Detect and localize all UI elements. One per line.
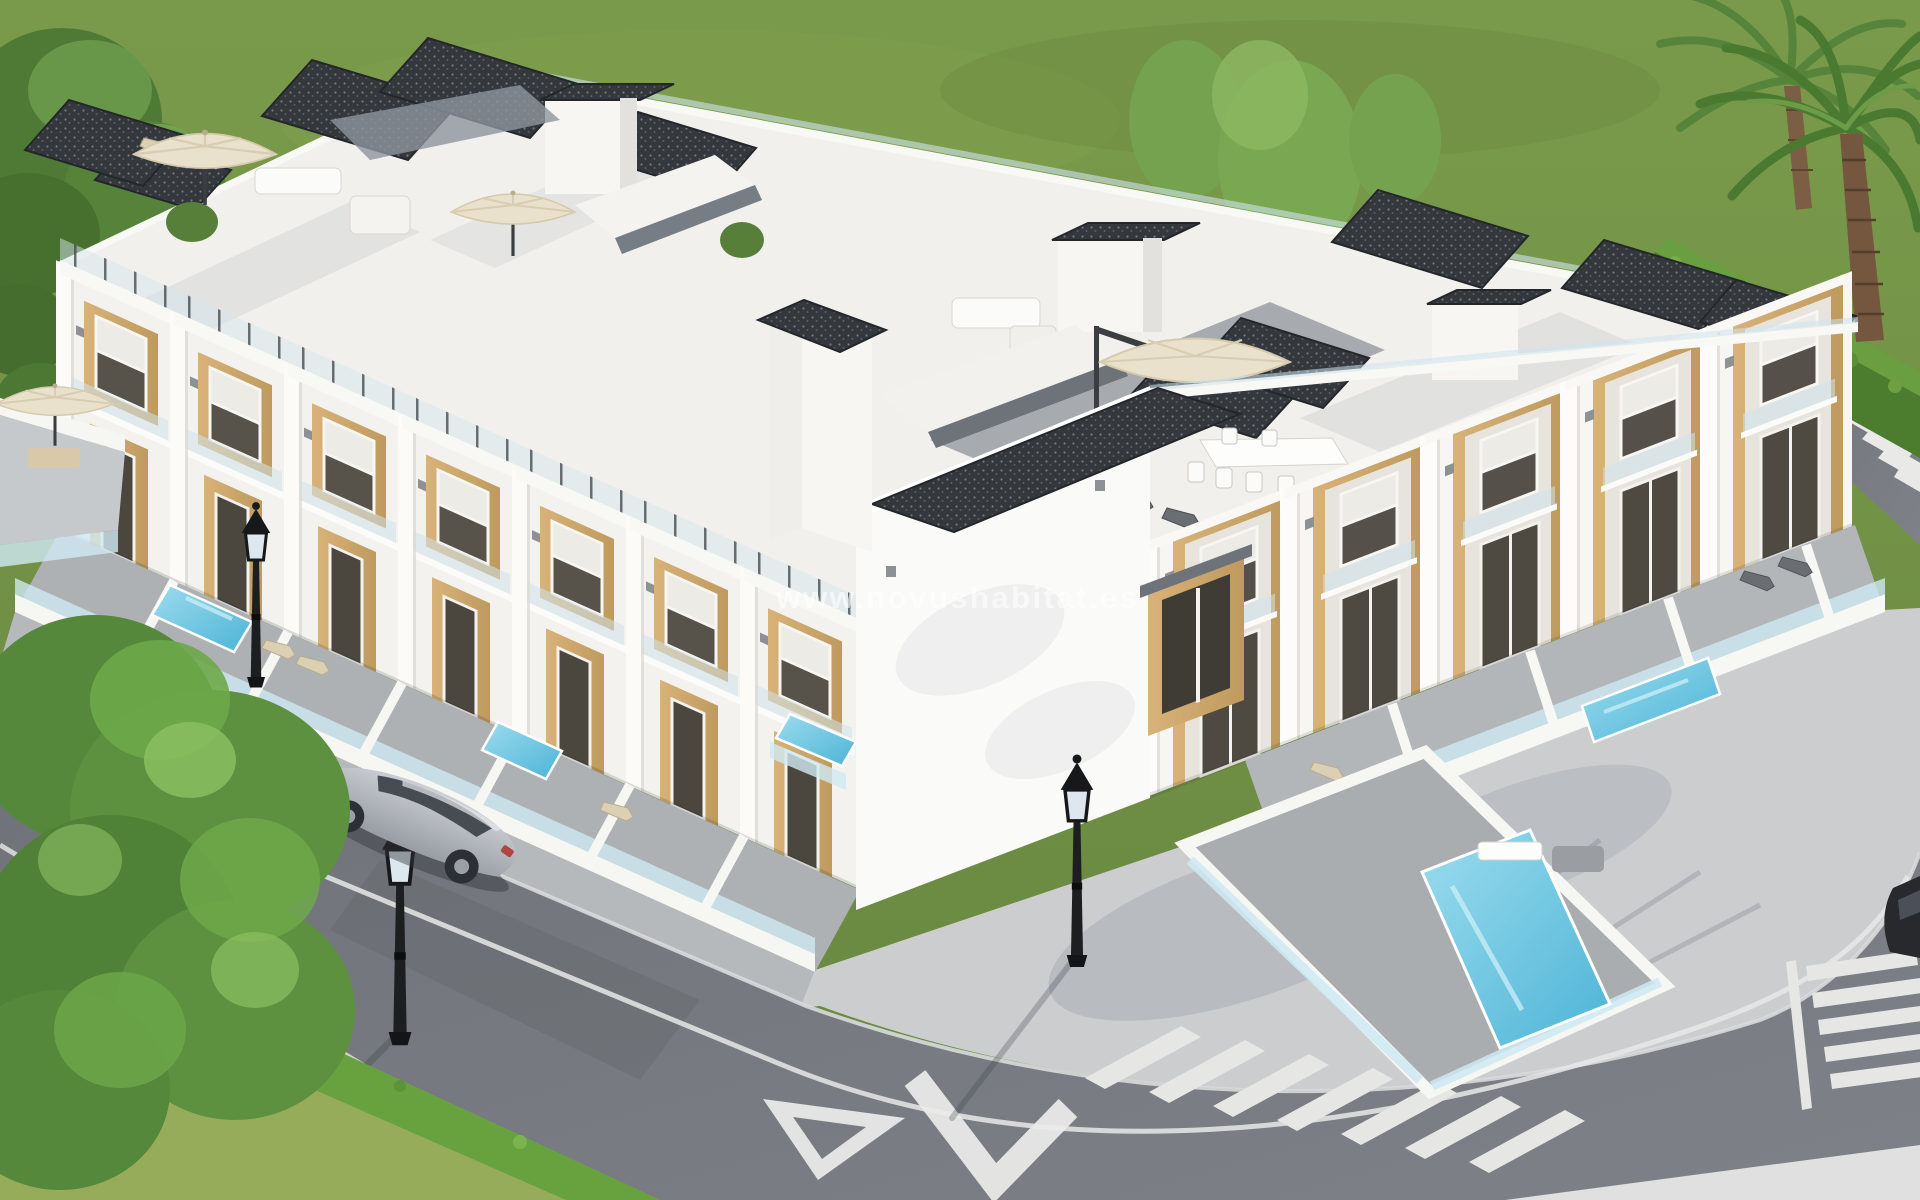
sun-lounger (1478, 842, 1542, 860)
roof-plant (720, 222, 764, 258)
roof-plant (166, 202, 218, 242)
outdoor-table (28, 448, 80, 468)
outdoor-sofa (1552, 846, 1604, 872)
stair-tower (758, 300, 886, 552)
render-viewport: www.novushabitat.es (0, 0, 1920, 1200)
architectural-render: www.novushabitat.es (0, 0, 1920, 1200)
watermark: www.novushabitat.es (775, 580, 1139, 615)
